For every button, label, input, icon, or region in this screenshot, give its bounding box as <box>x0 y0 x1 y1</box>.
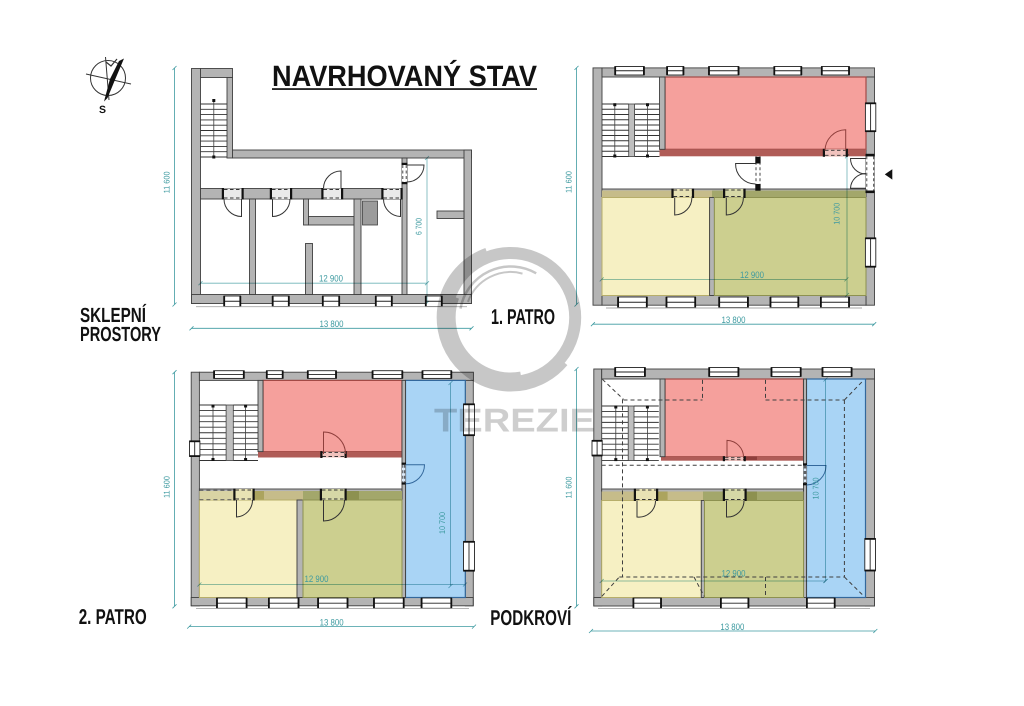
svg-text:11 600: 11 600 <box>564 171 574 193</box>
svg-text:1. PATRO: 1. PATRO <box>491 305 555 329</box>
svg-text:10 700: 10 700 <box>811 477 821 499</box>
svg-text:2. PATRO: 2. PATRO <box>79 605 147 629</box>
svg-text:S: S <box>99 104 106 116</box>
svg-text:13 800: 13 800 <box>320 617 344 627</box>
svg-text:13 800: 13 800 <box>720 622 744 632</box>
svg-text:6 700: 6 700 <box>414 218 424 235</box>
svg-text:10 700: 10 700 <box>832 202 842 224</box>
svg-text:12 900: 12 900 <box>722 568 746 578</box>
svg-text:12 900: 12 900 <box>319 274 343 284</box>
svg-text:13 800: 13 800 <box>722 315 746 325</box>
svg-text:13 800: 13 800 <box>320 319 344 329</box>
svg-text:12 900: 12 900 <box>305 574 329 584</box>
svg-text:TEREZIE: TEREZIE <box>434 402 595 439</box>
svg-text:PODKROVÍ: PODKROVÍ <box>490 605 572 630</box>
svg-text:12 900: 12 900 <box>740 270 764 280</box>
svg-text:11 600: 11 600 <box>162 171 172 193</box>
svg-text:NAVRHOVANÝ STAV: NAVRHOVANÝ STAV <box>272 59 537 93</box>
svg-text:11 600: 11 600 <box>564 476 574 498</box>
svg-text:11 600: 11 600 <box>162 476 172 498</box>
svg-text:PROSTORY: PROSTORY <box>80 323 161 346</box>
svg-text:10 700: 10 700 <box>437 512 447 534</box>
